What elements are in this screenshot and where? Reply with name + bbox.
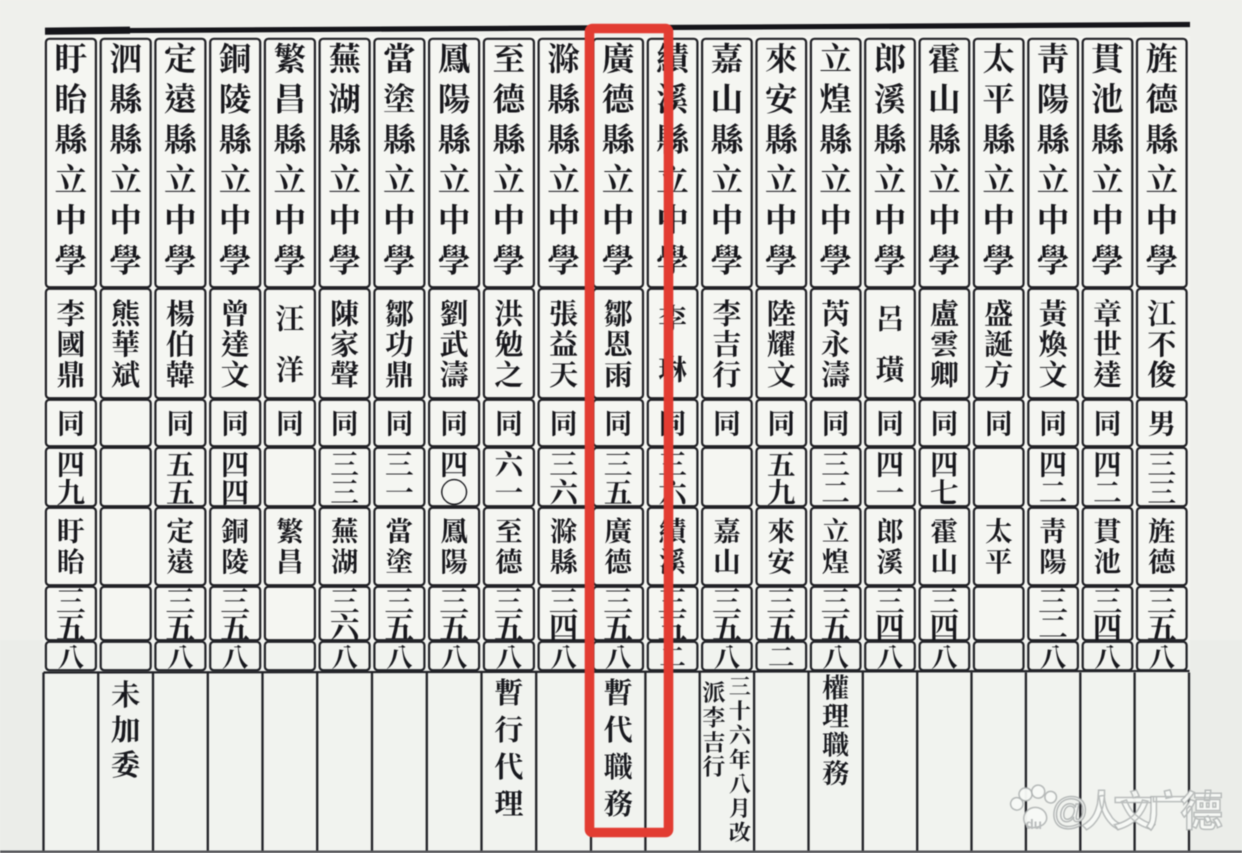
svg-text:du: du (1026, 817, 1043, 832)
